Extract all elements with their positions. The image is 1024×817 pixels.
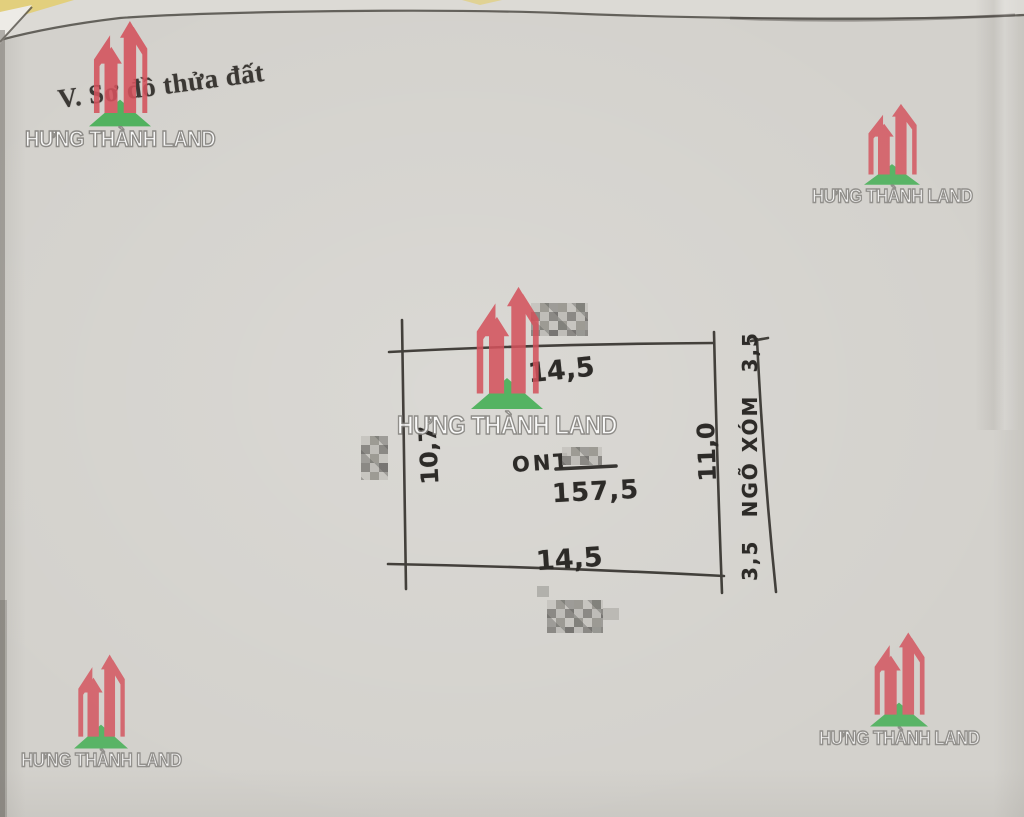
redacted-text — [547, 600, 603, 633]
plot-outline-drawing — [0, 0, 1024, 817]
alley-width-upper: 3,5 — [738, 331, 762, 372]
dimension-left: 10,7 — [413, 422, 444, 487]
plot-edge-top — [389, 343, 714, 352]
plot-area: 157,5 — [551, 475, 640, 510]
alley-annotation: 3,5 NGÕ XÓM 3,5 — [738, 331, 762, 581]
dimension-bottom: 14,5 — [535, 542, 604, 578]
dimension-right: 11,0 — [692, 421, 722, 484]
redacted-text — [531, 303, 588, 336]
redacted-text — [361, 436, 388, 480]
redacted-text — [537, 586, 549, 597]
alley-name: NGÕ XÓM — [738, 395, 762, 518]
redacted-text — [562, 447, 602, 465]
alley-width-lower: 3,5 — [738, 540, 762, 581]
redacted-text — [603, 608, 619, 620]
plot-edge-left — [402, 320, 406, 589]
